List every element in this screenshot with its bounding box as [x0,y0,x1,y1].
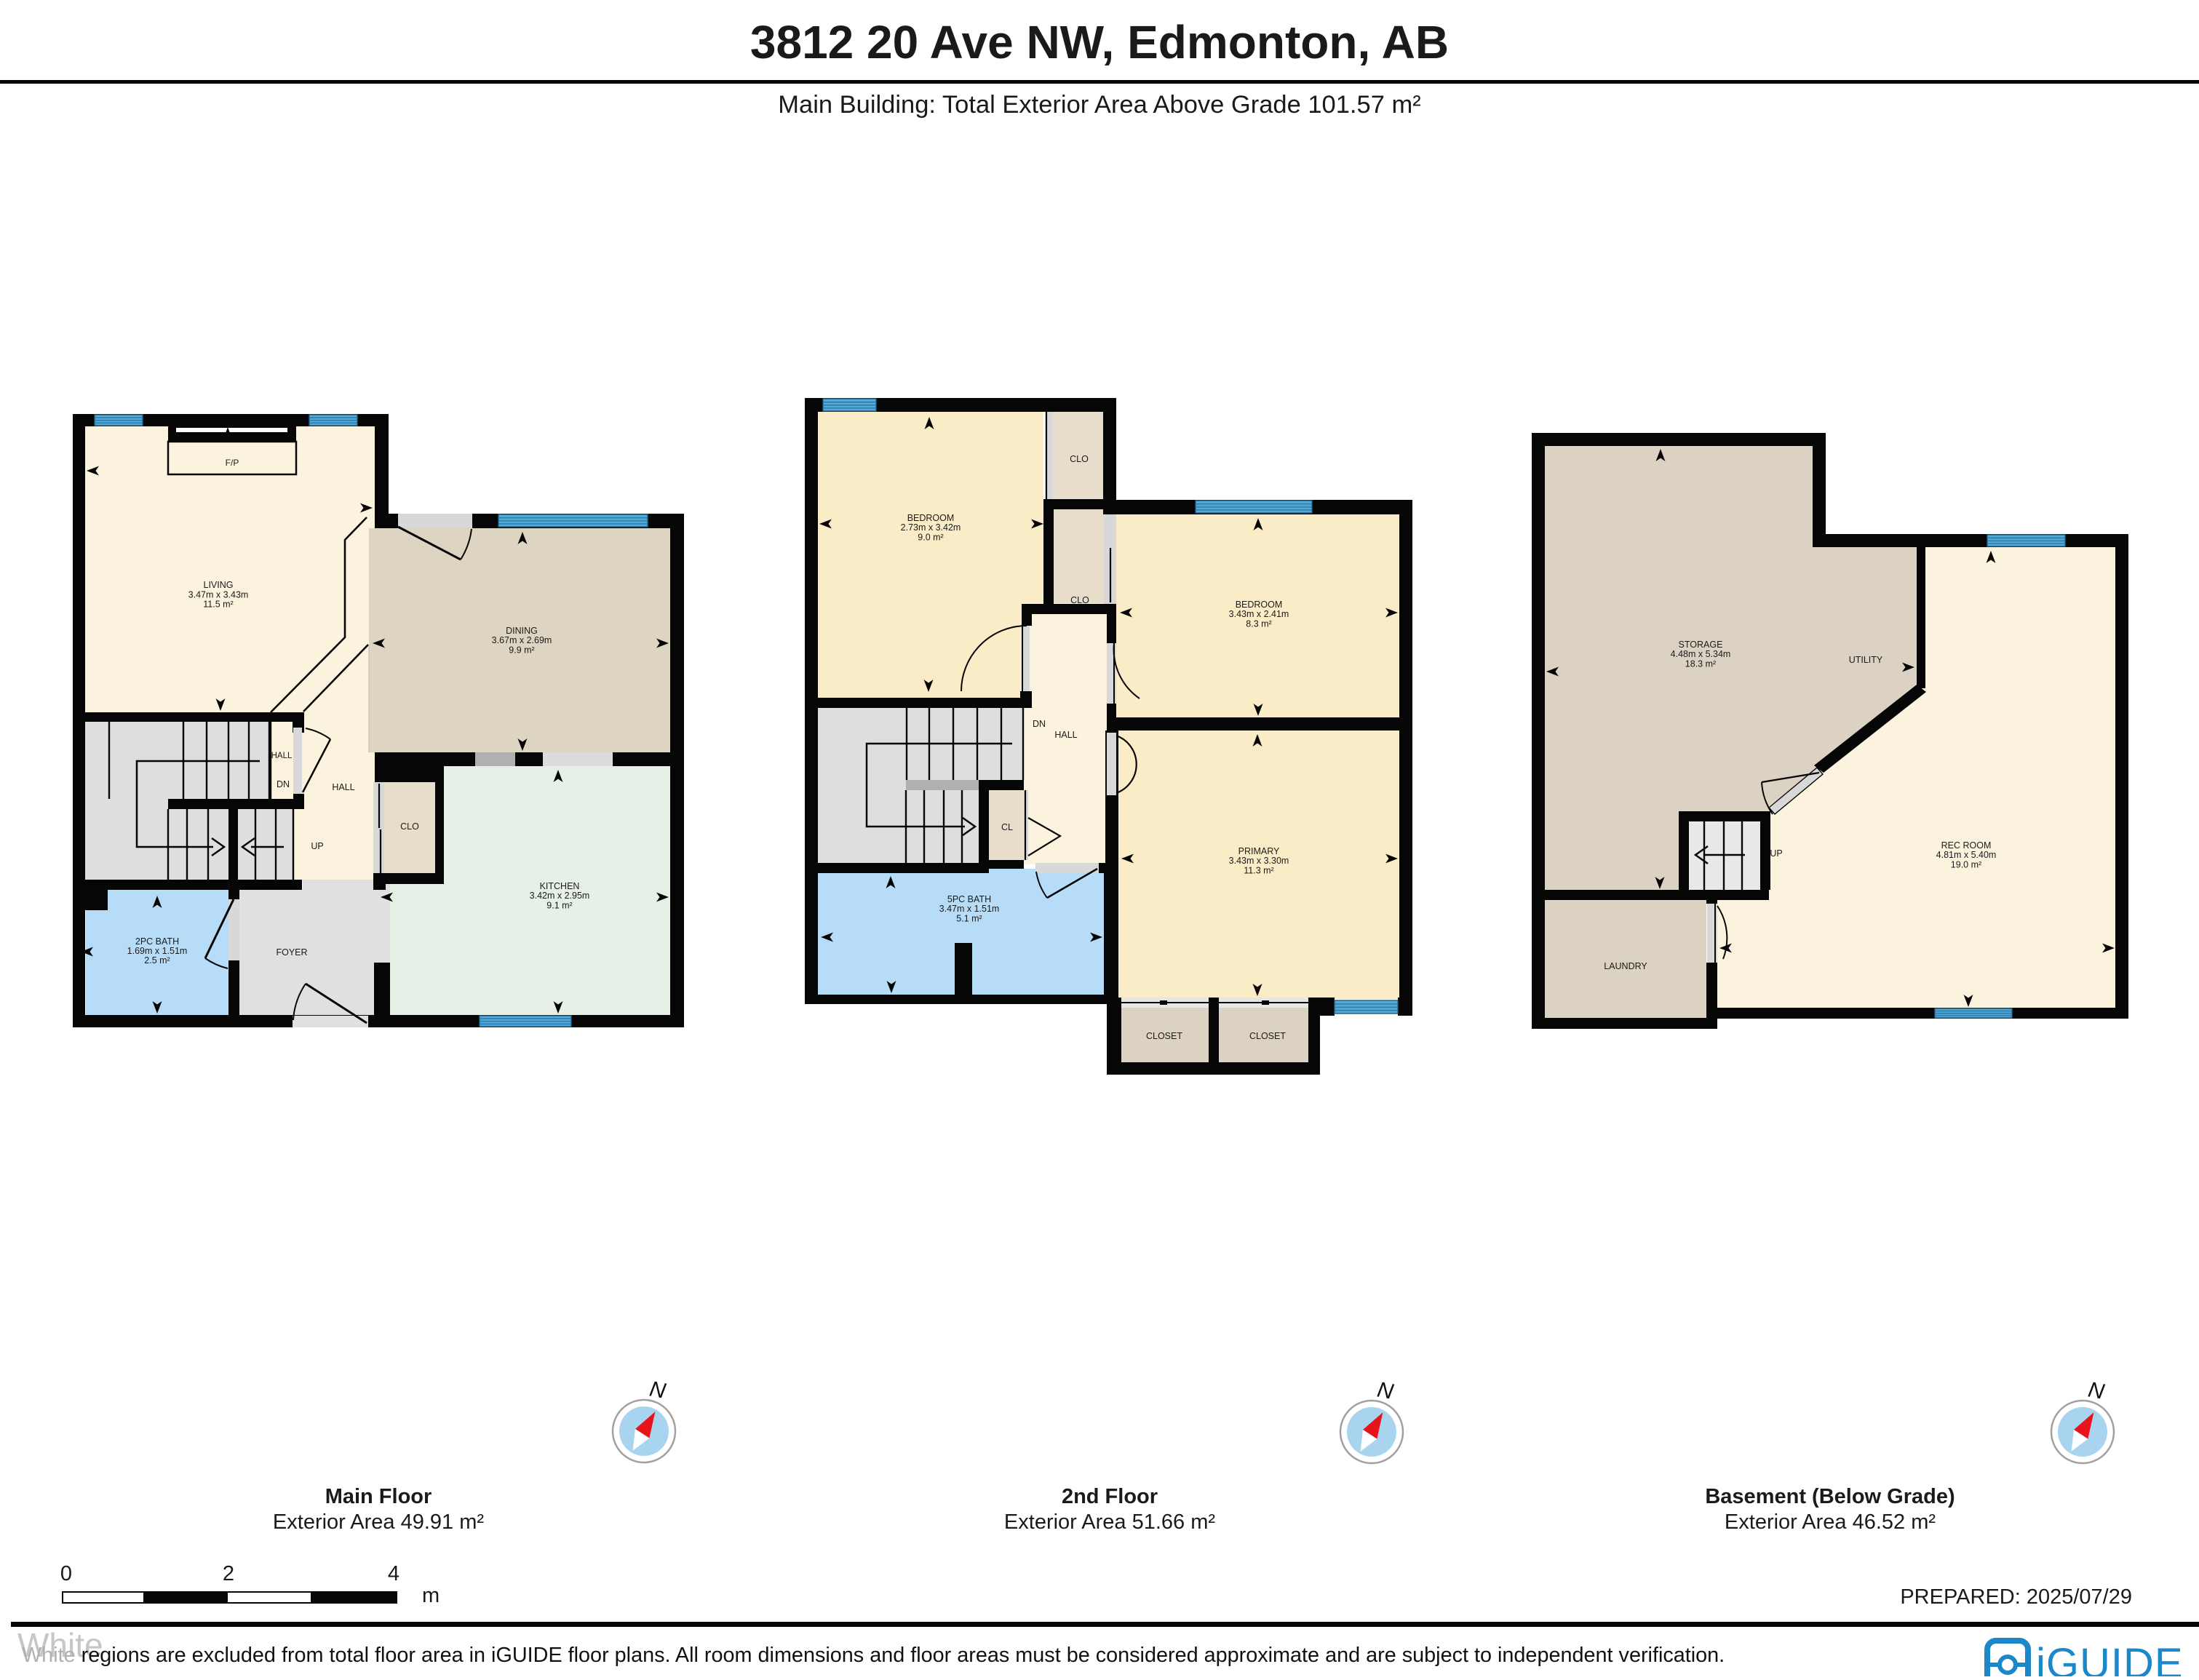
svg-text:3812 20 Ave NW, Edmonton, AB: 3812 20 Ave NW, Edmonton, AB [750,16,1449,68]
svg-text:CLO: CLO [1070,595,1089,605]
svg-text:CLO: CLO [1070,454,1089,464]
svg-text:Main Floor: Main Floor [325,1485,432,1508]
svg-text:Exterior Area 49.91 m²: Exterior Area 49.91 m² [273,1510,484,1534]
svg-text:FOYER: FOYER [276,947,307,958]
svg-text:9.1 m²: 9.1 m² [546,900,572,910]
svg-text:4: 4 [388,1562,399,1585]
svg-text:UTILITY: UTILITY [1849,655,1883,665]
svg-text:CLOSET: CLOSET [1146,1031,1182,1041]
svg-text:3.42m x 2.95m: 3.42m x 2.95m [530,891,590,901]
svg-text:STORAGE: STORAGE [1679,640,1723,650]
svg-text:BEDROOM: BEDROOM [1236,600,1283,610]
svg-text:3.47m x 1.51m: 3.47m x 1.51m [939,904,1000,914]
svg-text:KITCHEN: KITCHEN [540,881,580,891]
svg-text:UP: UP [1770,848,1782,859]
svg-text:4.48m x 5.34m: 4.48m x 5.34m [1671,649,1731,659]
svg-text:4.81m x 5.40m: 4.81m x 5.40m [1936,850,1997,860]
svg-text:19.0 m²: 19.0 m² [1951,859,1981,869]
svg-text:8.3 m²: 8.3 m² [1246,618,1271,629]
svg-text:3.67m x 2.69m: 3.67m x 2.69m [492,635,552,645]
svg-text:3.43m x 3.30m: 3.43m x 3.30m [1229,856,1289,866]
svg-text:White regions are excluded fro: White regions are excluded from total fl… [22,1644,1725,1667]
svg-text:Exterior Area 46.52 m²: Exterior Area 46.52 m² [1725,1510,1936,1534]
svg-text:2: 2 [223,1562,234,1585]
svg-text:0: 0 [60,1562,72,1585]
svg-text:Basement (Below Grade): Basement (Below Grade) [1705,1485,1955,1508]
svg-text:HALL: HALL [271,752,293,760]
svg-text:9.9 m²: 9.9 m² [509,645,534,655]
svg-text:iGUIDE: iGUIDE [2036,1640,2184,1676]
svg-text:m: m [422,1584,440,1607]
svg-text:11.3 m²: 11.3 m² [1244,865,1273,875]
svg-text:LIVING: LIVING [204,580,234,590]
svg-text:CL: CL [1001,822,1013,832]
svg-text:3.43m x 2.41m: 3.43m x 2.41m [1229,609,1289,619]
svg-text:BEDROOM: BEDROOM [907,513,955,523]
svg-text:DINING: DINING [506,626,538,636]
svg-text:HALL: HALL [1054,730,1077,740]
svg-text:DN: DN [277,779,290,789]
svg-text:HALL: HALL [332,782,354,792]
svg-text:5.1 m²: 5.1 m² [956,913,982,923]
svg-text:18.3 m²: 18.3 m² [1685,658,1716,669]
svg-text:Exterior Area 51.66 m²: Exterior Area 51.66 m² [1004,1510,1215,1534]
svg-text:LAUNDRY: LAUNDRY [1604,961,1647,971]
svg-text:REC ROOM: REC ROOM [1941,840,1992,851]
svg-text:Main Building: Total Exterior: Main Building: Total Exterior Area Above… [778,91,1420,119]
svg-text:2.73m x 3.42m: 2.73m x 3.42m [901,522,961,533]
svg-text:11.5 m²: 11.5 m² [203,600,233,610]
svg-text:UP: UP [311,841,323,851]
svg-text:9.0 m²: 9.0 m² [918,532,943,542]
svg-text:2nd Floor: 2nd Floor [1062,1485,1158,1508]
svg-text:CLOSET: CLOSET [1249,1031,1286,1041]
svg-text:PREPARED: 2025/07/29: PREPARED: 2025/07/29 [1900,1585,2132,1609]
svg-text:2PC BATH: 2PC BATH [135,936,179,947]
svg-text:2.5 m²: 2.5 m² [144,955,170,966]
svg-text:F/P: F/P [226,458,239,468]
svg-text:CLO: CLO [400,821,419,832]
svg-text:PRIMARY: PRIMARY [1238,846,1280,856]
svg-text:3.47m x 3.43m: 3.47m x 3.43m [188,590,249,600]
svg-text:DN: DN [1033,719,1046,729]
svg-text:1.69m x 1.51m: 1.69m x 1.51m [127,946,188,956]
svg-text:5PC BATH: 5PC BATH [947,894,991,904]
